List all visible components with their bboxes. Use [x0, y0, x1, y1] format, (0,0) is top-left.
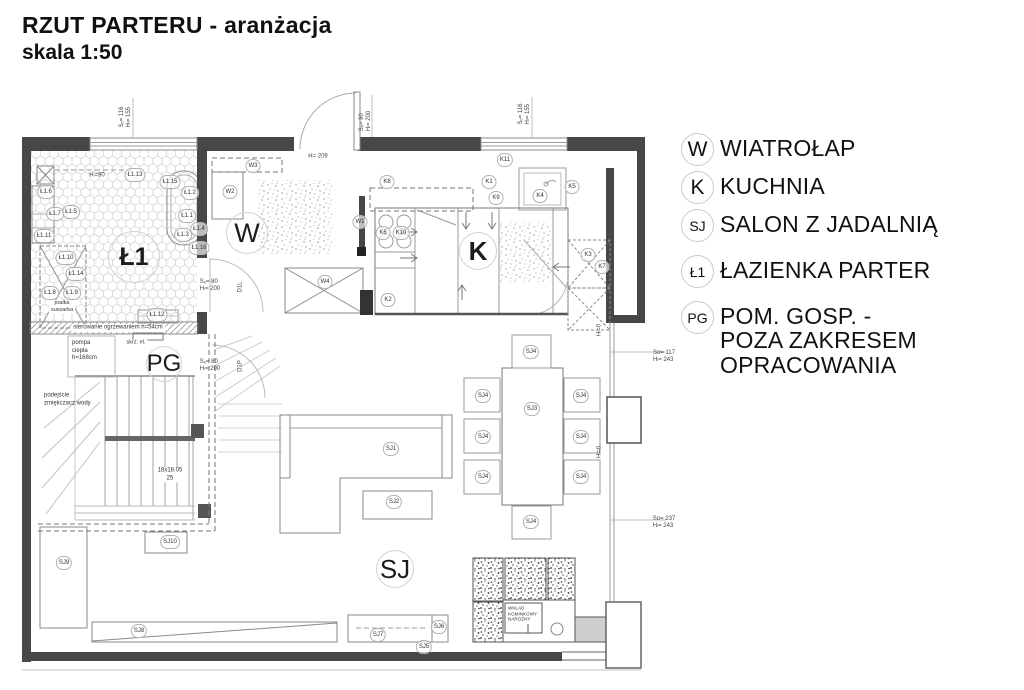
furniture-tag: K6 [376, 226, 391, 240]
dimension-label: Hₗ=0 [596, 446, 603, 458]
furniture-tag: K5 [565, 180, 580, 194]
plan-note: pompa ciepła h=168cm [72, 340, 97, 363]
room-label: SJ [376, 550, 414, 588]
furniture-tag: Ł1.3 [174, 228, 192, 242]
furniture-tag: K2 [381, 293, 396, 307]
furniture-tag: SJ4 [475, 470, 491, 484]
plan-note: pralka suszarka [49, 300, 75, 314]
furniture-tag: K7 [595, 260, 610, 274]
dimension-label: Hₗ=0 [596, 324, 603, 336]
dimension-label: D1L [237, 281, 244, 292]
plan-annotations: Ł1.13Ł1.15Ł1.2Ł1.6Ł1.5Ł1.7Ł1.1Ł1.11Ł1.3Ł… [0, 0, 1024, 690]
dimension-label: D1P [237, 360, 244, 372]
furniture-tag: W3 [246, 159, 261, 173]
furniture-tag: Ł1.13 [124, 168, 145, 182]
furniture-tag: SJ4 [475, 430, 491, 444]
furniture-tag: SJ4 [573, 389, 589, 403]
furniture-tag: K4 [533, 189, 548, 203]
furniture-tag: Ł1.8 [41, 286, 59, 300]
furniture-tag: Ł1.7 [46, 207, 64, 221]
dimension-label: Sₒ= 80 Hₗ= 200 [200, 359, 221, 373]
furniture-tag: SJ2 [386, 495, 402, 509]
dimension-label: Sₒ= 80 Hₗ= 200 [200, 279, 221, 293]
dimension-label: Sₒ= 116 Hₗ= 155 [518, 103, 532, 124]
floor-plan-page: RZUT PARTERU - aranżacja skala 1:50 WWIA… [0, 0, 1024, 690]
furniture-tag: W2 [223, 185, 238, 199]
furniture-tag: Ł1.5 [62, 205, 80, 219]
furniture-tag: Ł1.11 [34, 229, 55, 243]
plan-note: WKŁAD KOMINKOWY NAROŻNY [508, 605, 537, 622]
furniture-tag: SJ3 [524, 402, 540, 416]
dimension-label: Sₒ= 116 Hₗ= 155 [119, 106, 133, 127]
plan-note: 18x18.05 25 [156, 468, 185, 483]
furniture-tag: K8 [380, 175, 395, 189]
furniture-tag: SJ4 [573, 470, 589, 484]
furniture-tag: Ł1.10 [55, 251, 76, 265]
furniture-tag: W1 [353, 215, 368, 229]
furniture-tag: Ł1.6 [37, 185, 55, 199]
plan-note: podejście zmiękczacz wody [44, 393, 91, 408]
furniture-tag: Ł1.2 [181, 186, 199, 200]
furniture-tag: K9 [489, 191, 504, 205]
furniture-tag: Ł1.12 [146, 308, 167, 322]
furniture-tag: Ł1.1 [178, 209, 196, 223]
dimension-label: Sₒ= 90 Hₗ= 200 [359, 111, 373, 132]
dimension-label: So= 237 Hₗ= 243 [653, 516, 676, 530]
furniture-tag: SJ5 [416, 640, 432, 654]
dimension-label: So= 117 Hₗ= 243 [653, 350, 675, 364]
furniture-tag: SJ4 [573, 430, 589, 444]
furniture-tag: SJ8 [131, 624, 147, 638]
furniture-tag: Ł1.4 [190, 222, 208, 236]
furniture-tag: K3 [581, 248, 596, 262]
furniture-tag: K11 [497, 153, 513, 167]
room-label: W [226, 212, 268, 254]
furniture-tag: SJ7 [370, 628, 386, 642]
room-label: Ł1 [108, 231, 160, 283]
dimension-label: H= 209 [308, 153, 328, 160]
furniture-tag: SJ4 [523, 515, 539, 529]
furniture-tag: SJ9 [56, 556, 72, 570]
room-label: K [459, 232, 497, 270]
furniture-tag: Ł1.16 [188, 241, 209, 255]
furniture-tag: W4 [318, 275, 333, 289]
furniture-tag: K10 [393, 226, 410, 240]
furniture-tag: Ł1.14 [65, 267, 86, 281]
furniture-tag: SJ4 [523, 345, 539, 359]
plan-note: sterowanie ogrzewaniem h=54cm [71, 324, 165, 332]
furniture-tag: SJ6 [431, 620, 447, 634]
furniture-tag: K1 [482, 175, 497, 189]
plan-note: skrz. el. [125, 340, 148, 347]
furniture-tag: Ł1.9 [63, 286, 81, 300]
furniture-tag: SJ1 [383, 442, 399, 456]
furniture-tag: SJ10 [160, 535, 180, 549]
room-label: PG [146, 346, 182, 382]
furniture-tag: Ł1.15 [159, 175, 180, 189]
dimension-label: Hₗ=90 [89, 172, 105, 179]
furniture-tag: SJ4 [475, 389, 491, 403]
